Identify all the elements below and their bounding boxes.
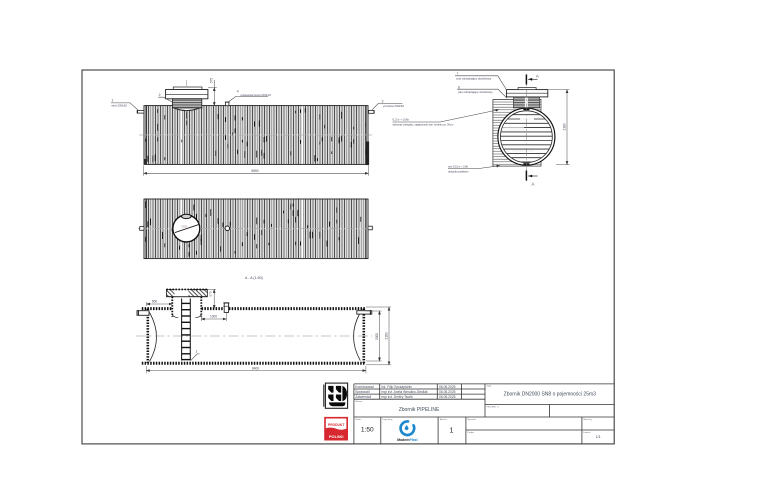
svg-text:1000: 1000: [210, 314, 217, 318]
svg-text:3: 3: [382, 99, 384, 103]
svg-text:4: 4: [237, 90, 239, 94]
svg-text:mgr inż. Dmitry Tsorik: mgr inż. Dmitry Tsorik: [381, 395, 413, 399]
svg-text:pas odciążający dociskowy: pas odciążający dociskowy: [458, 90, 493, 94]
svg-text:Format: Format: [583, 431, 590, 434]
svg-text:500: 500: [152, 300, 158, 304]
svg-text:Zatwierdził: Zatwierdził: [355, 395, 371, 399]
svg-text:1: 1: [112, 99, 114, 103]
svg-text:2: 2: [159, 93, 161, 97]
svg-text:odpowietrzenie DN110: odpowietrzenie DN110: [241, 93, 271, 97]
svg-text:1/1: 1/1: [596, 435, 601, 439]
svg-text:8400: 8400: [252, 367, 259, 371]
svg-text:1: 1: [450, 426, 454, 435]
svg-text:Rysował: Rysował: [467, 419, 476, 421]
svg-text:Zbornik PIPELINE: Zbornik PIPELINE: [399, 407, 440, 413]
svg-text:Nazwa:: Nazwa:: [355, 401, 363, 403]
svg-text:Logo firmy: Logo firmy: [382, 418, 393, 421]
svg-text:Sprawdził: Sprawdził: [355, 390, 370, 394]
svg-text:2000: 2000: [375, 333, 379, 340]
svg-text:min 0,15 b ÷ 0,9b: min 0,15 b ÷ 0,9b: [448, 164, 469, 168]
svg-text:7: 7: [457, 72, 459, 76]
svg-text:2160: 2160: [385, 332, 389, 339]
svg-text:8550: 8550: [251, 169, 258, 173]
svg-text:Konstruował: Konstruował: [355, 385, 373, 389]
svg-text:ModernPlast: ModernPlast: [397, 438, 418, 442]
svg-text:Arkusz: Arkusz: [440, 418, 447, 421]
svg-text:pas odciążający dociskowy: pas odciążający dociskowy: [457, 77, 492, 81]
svg-text:06.05.2025: 06.05.2025: [439, 385, 456, 389]
svg-text:1:50: 1:50: [361, 427, 374, 434]
svg-text:Podpis: Podpis: [467, 432, 475, 434]
svg-text:Masa kg: Masa kg: [583, 419, 592, 421]
svg-text:1: 1: [196, 350, 198, 354]
svg-text:wlot DN160: wlot DN160: [112, 103, 128, 107]
svg-text:wykonać obsypkę, zagęszczać wa: wykonać obsypkę, zagęszczać war. średnio…: [393, 123, 454, 127]
svg-text:A: A: [532, 182, 535, 187]
svg-text:inż. Filip Szczapłohin: inż. Filip Szczapłohin: [381, 385, 412, 389]
svg-text:PRODUKT: PRODUKT: [328, 423, 344, 427]
svg-text:Zbornik DN2000 SN8 o pojemnośc: Zbornik DN2000 SN8 o pojemności 25m3: [504, 392, 596, 398]
svg-text:mgr inż. Aneta Wesołko-Siedlak: mgr inż. Aneta Wesołko-Siedlak: [381, 390, 428, 394]
svg-text:575: 575: [209, 78, 213, 84]
svg-text:06.05.2025: 06.05.2025: [439, 395, 456, 399]
svg-text:Skala: Skala: [355, 419, 361, 421]
svg-text:2160: 2160: [563, 123, 567, 130]
svg-text:PROJEKT nr: PROJEKT nr: [487, 406, 500, 409]
svg-text:0,2 b ÷ 0,9b: 0,2 b ÷ 0,9b: [393, 118, 410, 122]
svg-text:POLSKI: POLSKI: [329, 434, 343, 439]
svg-text:przelew DN160: przelew DN160: [384, 104, 405, 108]
svg-text:6: 6: [458, 85, 460, 89]
svg-text:570: 570: [208, 291, 212, 296]
svg-text:Tytuł:: Tytuł:: [487, 385, 493, 388]
svg-text:obsypka piaskiem: obsypka piaskiem: [448, 169, 469, 173]
svg-text:06.05.2025: 06.05.2025: [439, 390, 456, 394]
svg-text:A: A: [536, 74, 539, 79]
svg-text:A - A (1:50): A - A (1:50): [245, 276, 263, 280]
